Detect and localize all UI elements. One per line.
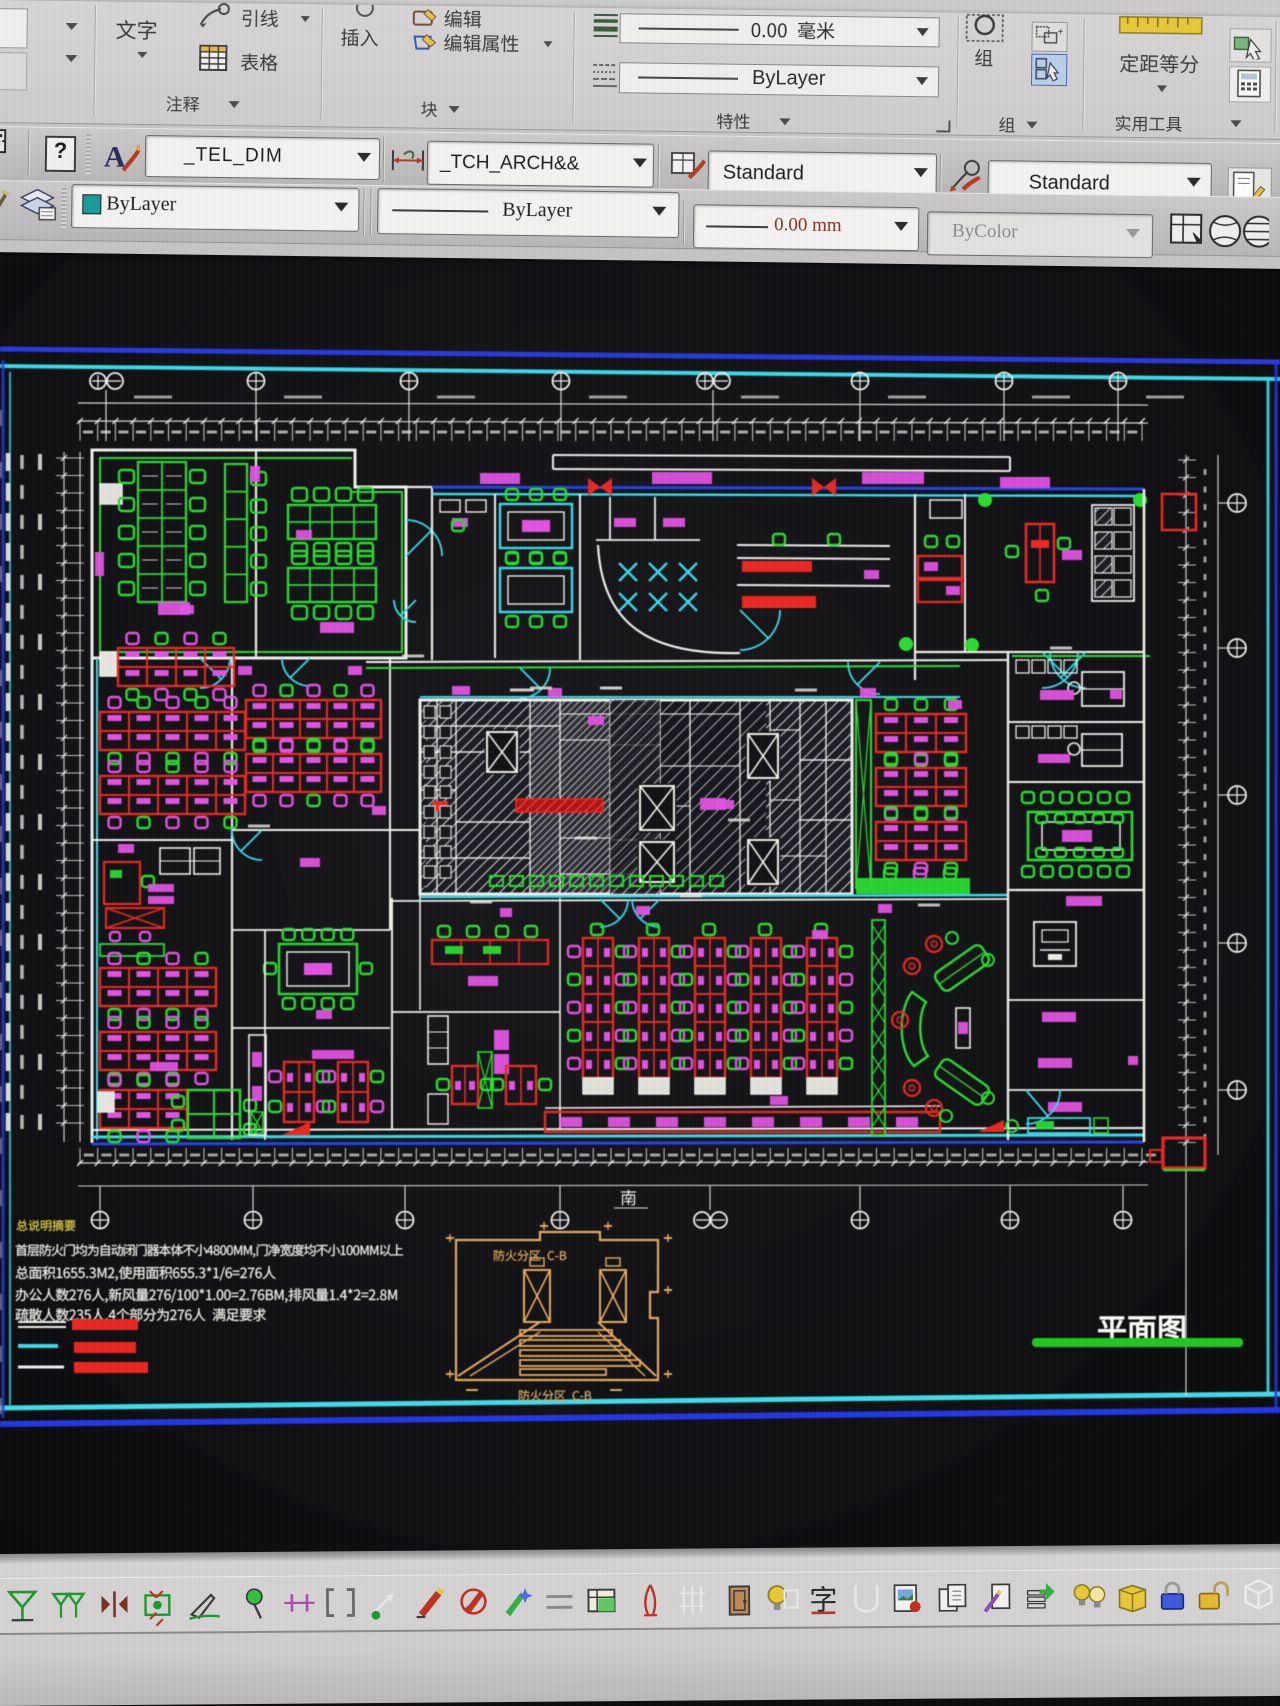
svg-text:+: + bbox=[1058, 27, 1064, 38]
